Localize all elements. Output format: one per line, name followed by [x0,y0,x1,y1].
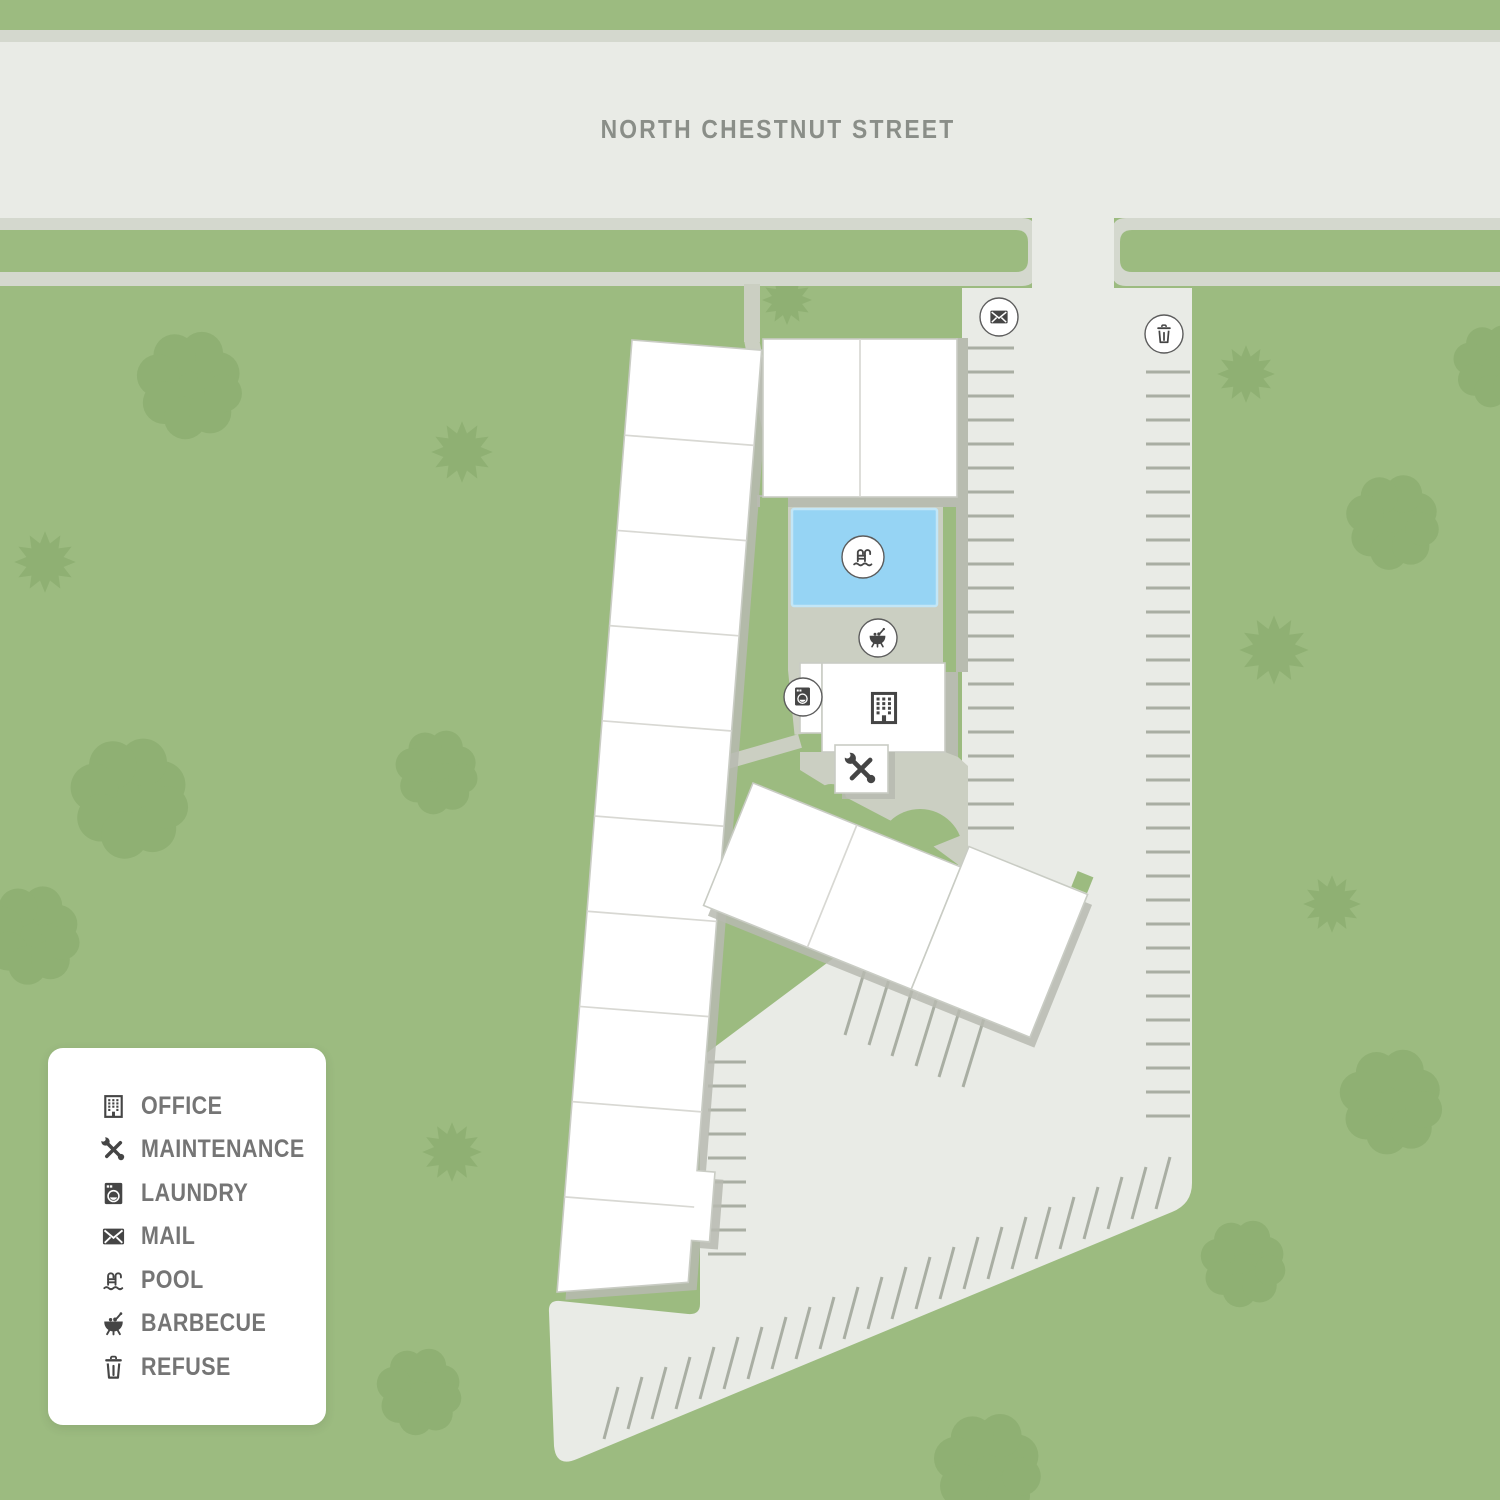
legend-label: OFFICE [141,1094,222,1119]
legend-item-barbecue: BARBECUE [100,1302,326,1346]
walkway-border-office-east [945,663,958,759]
legend-item-mail: MAIL [100,1215,326,1259]
legend-label: MAIL [141,1224,195,1249]
parking-stripes-left-column [968,348,1014,828]
refuse-icon [100,1354,127,1381]
legend-label: LAUNDRY [141,1181,248,1206]
legend-label: POOL [141,1268,204,1293]
laundry-marker [784,678,822,716]
refuse-marker [1145,315,1183,353]
office-icon [100,1093,127,1120]
laundry-icon [795,687,810,705]
verge-right [1120,230,1500,272]
legend-label: MAINTENANCE [141,1137,305,1162]
marker-circle [842,536,884,578]
legend-item-refuse: REFUSE [100,1345,326,1389]
legend-item-office: OFFICE [100,1084,326,1128]
legend-item-pool: POOL [100,1258,326,1302]
street-curb-top [0,30,1500,42]
refuse-icon [1157,325,1171,342]
mail-marker [980,298,1018,336]
legend-item-maintenance: MAINTENANCE [100,1128,326,1172]
mail-icon [990,311,1007,324]
laundry-icon [100,1180,127,1207]
barbecue-marker [859,619,897,657]
lawn-strip-east-of-pool [943,507,956,672]
site-map: NORTH CHESTNUT STREET [0,0,1500,1500]
legend-label: REFUSE [141,1355,231,1380]
maintenance-icon [100,1136,127,1163]
apartment-building-north [763,339,957,497]
pool-icon [100,1267,127,1294]
pool-marker [842,536,884,578]
legend-label: BARBECUE [141,1311,266,1336]
mail-icon [100,1223,127,1250]
verge-left [0,230,1028,272]
street-north-chestnut: NORTH CHESTNUT STREET [0,30,1500,286]
street-name-label: NORTH CHESTNUT STREET [601,116,956,145]
barbecue-icon [100,1310,127,1337]
legend-item-laundry: LAUNDRY [100,1171,326,1215]
lawn-strip-west-of-pool [760,497,788,673]
legend-panel: OFFICE MAINTENANCE LAUNDRY MAIL POOL BAR… [48,1048,326,1425]
